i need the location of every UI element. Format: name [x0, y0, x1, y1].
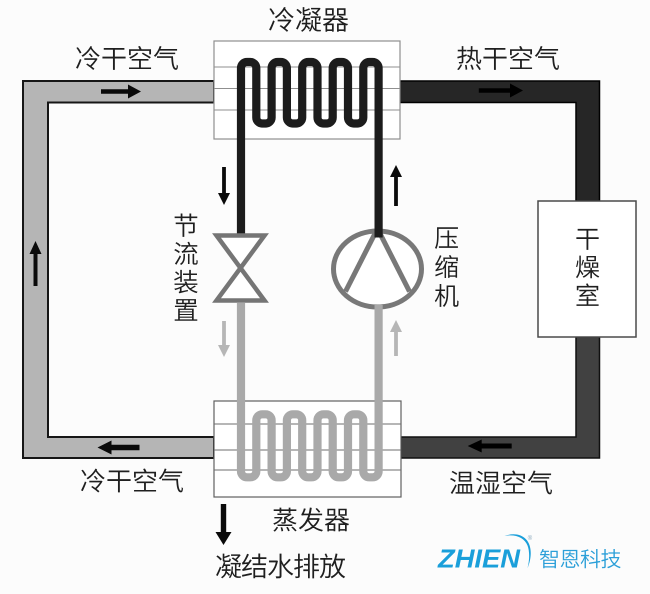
- svg-text:®: ®: [528, 535, 533, 542]
- svg-text:ZHIEN: ZHIEN: [437, 544, 521, 574]
